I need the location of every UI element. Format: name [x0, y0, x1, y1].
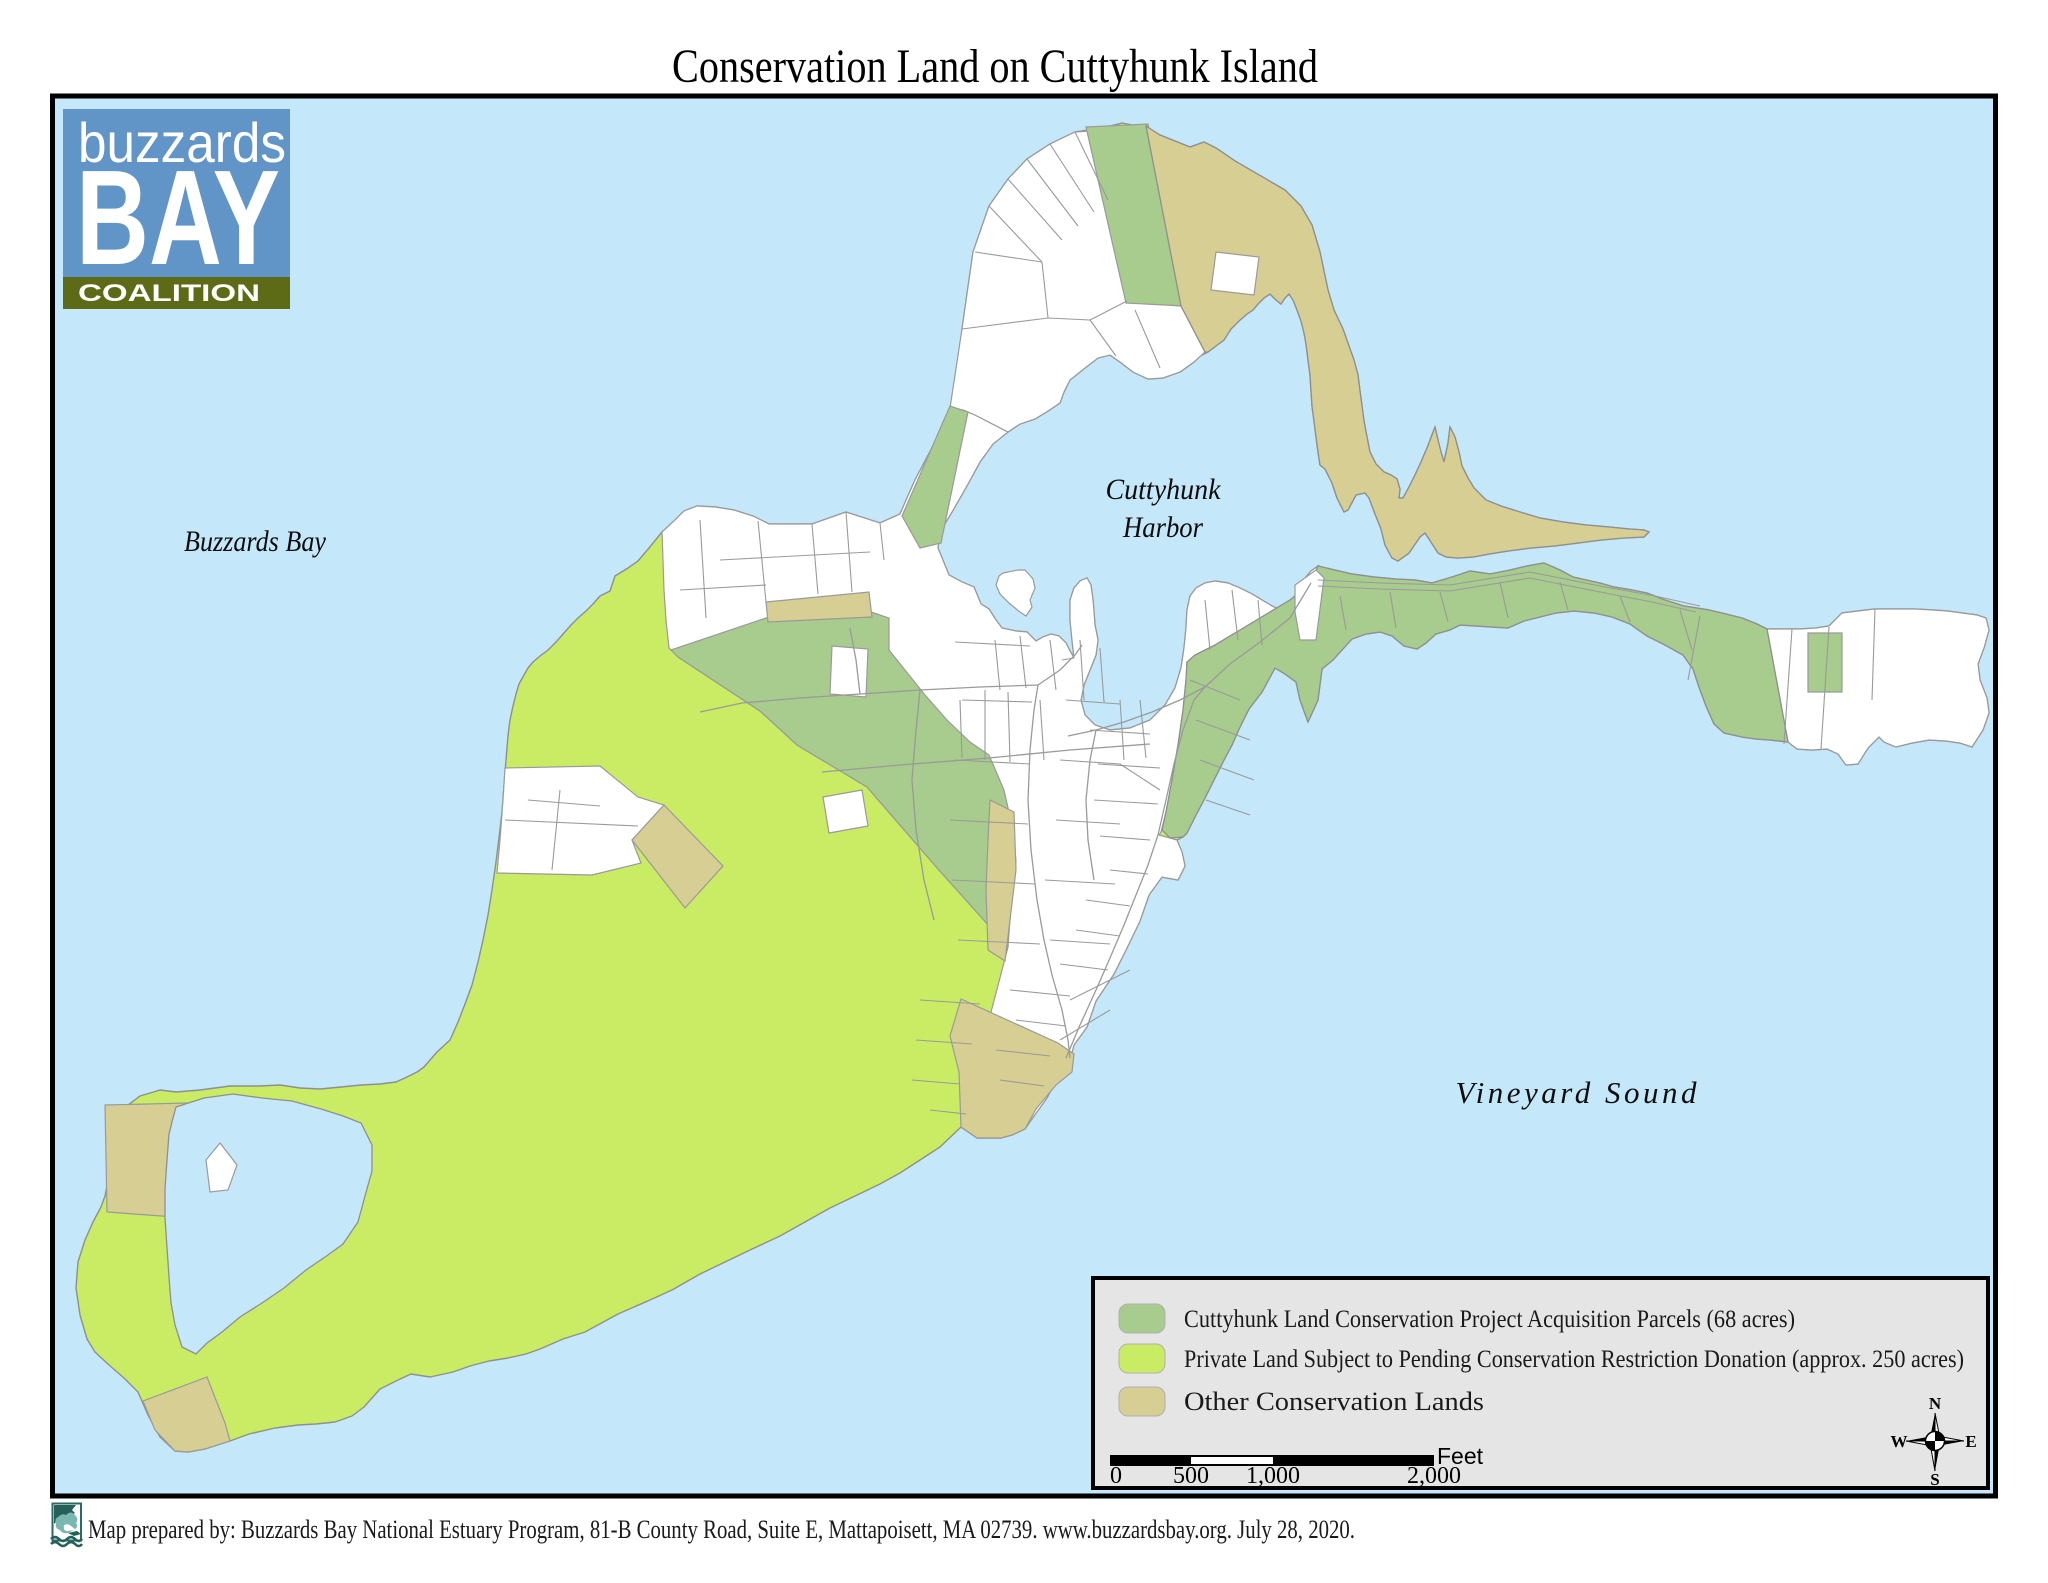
svg-text:1,000: 1,000 — [1246, 1463, 1300, 1489]
svg-text:Harbor: Harbor — [1122, 511, 1203, 544]
svg-text:COALITION: COALITION — [78, 280, 260, 307]
svg-text:S: S — [1930, 1470, 1939, 1489]
svg-text:N: N — [1929, 1394, 1942, 1413]
svg-text:Private Land Subject to Pendin: Private Land Subject to Pending Conserva… — [1184, 1344, 1964, 1373]
svg-text:W: W — [1891, 1432, 1908, 1451]
svg-text:Cuttyhunk: Cuttyhunk — [1106, 473, 1222, 506]
svg-text:BAY: BAY — [76, 142, 280, 293]
svg-text:Other Conservation Lands: Other Conservation Lands — [1184, 1387, 1484, 1416]
svg-text:Buzzards Bay: Buzzards Bay — [184, 525, 327, 558]
svg-text:500: 500 — [1173, 1463, 1209, 1489]
svg-text:Conservation Land on Cuttyhunk: Conservation Land on Cuttyhunk Island — [672, 40, 1318, 93]
svg-text:Map prepared by: Buzzards Bay: Map prepared by: Buzzards Bay National E… — [88, 1515, 1355, 1544]
svg-text:0: 0 — [1110, 1463, 1122, 1489]
svg-text:Cuttyhunk Land Conservation Pr: Cuttyhunk Land Conservation Project Acqu… — [1184, 1304, 1795, 1333]
svg-text:E: E — [1965, 1432, 1976, 1451]
svg-text:2,000: 2,000 — [1407, 1463, 1461, 1489]
